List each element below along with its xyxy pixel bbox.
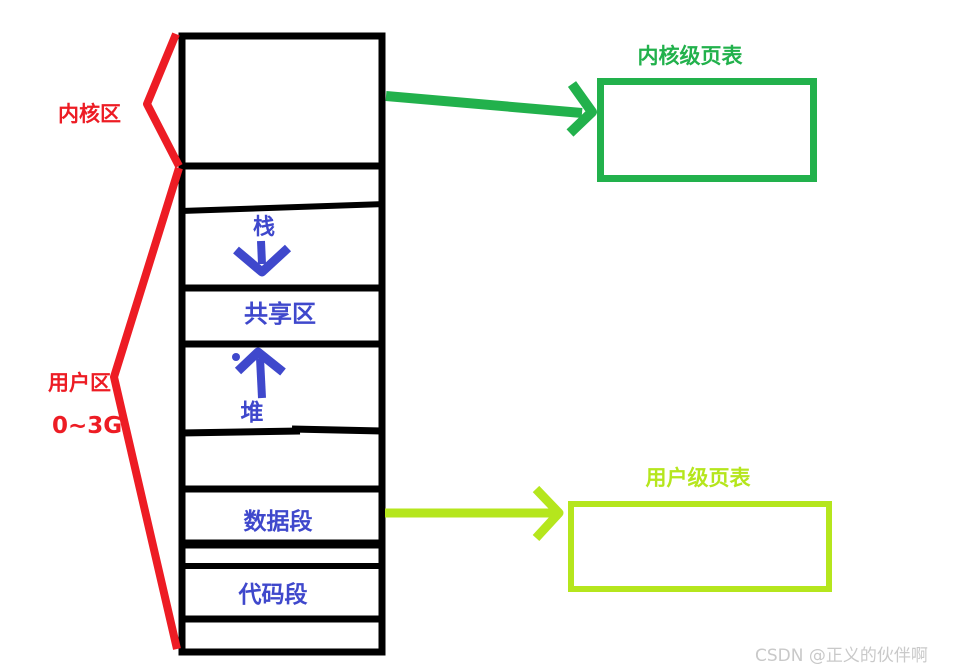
kernel-page-table-arrow-shaft (386, 96, 582, 113)
user-region-brace (114, 168, 179, 649)
code-segment-label: 代码段 (239, 584, 308, 607)
user-region-label: 用户区 (48, 373, 111, 394)
kernel-region-brace (147, 34, 179, 166)
user-page-table-label: 用户级页表 (646, 468, 751, 489)
kernel-page-table-label: 内核级页表 (638, 46, 743, 67)
user-region-range-label: 0~3G (52, 415, 122, 438)
shared-segment-label: 共享区 (244, 302, 316, 326)
heap-segment-label: 堆 (241, 402, 264, 425)
stack-down-arrow-stem (261, 241, 262, 264)
heap-up-arrow-stem (260, 358, 262, 398)
kernel-region-label: 内核区 (58, 104, 121, 125)
memory-layout-diagram: 内核区 用户区 0~3G 栈 共享区 堆 数据段 代码段 内核级页表 用户级页表… (0, 0, 960, 671)
kernel-page-table-box (597, 78, 817, 182)
user-page-table-box (568, 501, 832, 592)
divider-stack-top (181, 204, 384, 211)
divider-heap-bottom-right (292, 429, 384, 431)
divider-heap-bottom-left (181, 431, 300, 433)
heap-arrow-dot (232, 353, 240, 361)
stack-segment-label: 栈 (253, 217, 275, 239)
data-segment-label: 数据段 (244, 511, 313, 534)
watermark-text: CSDN @正义的伙伴啊 (755, 641, 928, 666)
